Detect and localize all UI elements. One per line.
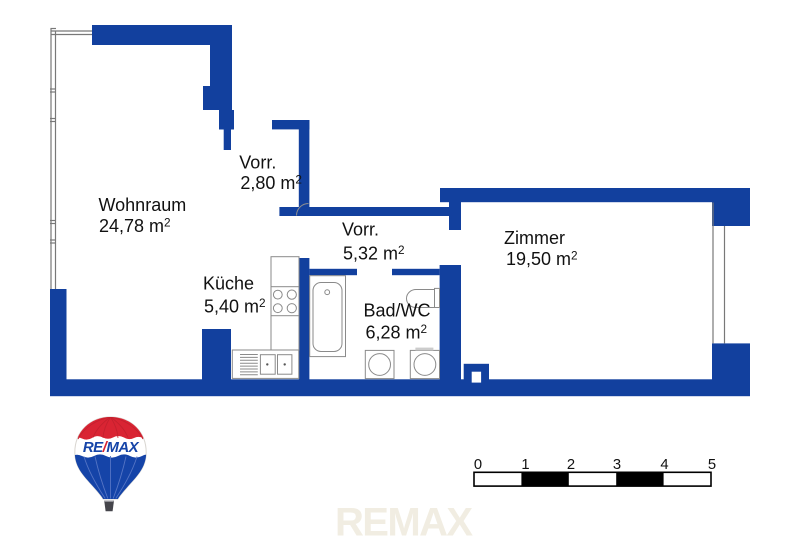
- svg-text:RE/MAX: RE/MAX: [83, 439, 140, 456]
- svg-text:24,78 m2: 24,78 m2: [99, 216, 171, 237]
- svg-text:Wohnraum: Wohnraum: [99, 195, 187, 215]
- svg-text:3: 3: [613, 457, 621, 473]
- svg-text:19,50 m2: 19,50 m2: [506, 249, 578, 270]
- svg-text:6,28 m2: 6,28 m2: [366, 322, 428, 343]
- svg-text:0: 0: [474, 457, 482, 473]
- svg-text:Vorr.: Vorr.: [239, 152, 276, 172]
- svg-text:Vorr.: Vorr.: [342, 220, 379, 240]
- svg-text:REMAX: REMAX: [335, 501, 473, 545]
- svg-text:2: 2: [567, 457, 575, 473]
- svg-text:4: 4: [660, 457, 668, 473]
- svg-text:2,80 m2: 2,80 m2: [240, 173, 302, 194]
- svg-text:5: 5: [708, 457, 716, 473]
- svg-text:1: 1: [521, 457, 529, 473]
- svg-text:5,32 m2: 5,32 m2: [343, 243, 405, 264]
- svg-text:Zimmer: Zimmer: [504, 228, 565, 248]
- svg-text:Bad/WC: Bad/WC: [364, 301, 431, 321]
- svg-text:5,40 m2: 5,40 m2: [204, 296, 266, 317]
- svg-text:Küche: Küche: [203, 274, 254, 294]
